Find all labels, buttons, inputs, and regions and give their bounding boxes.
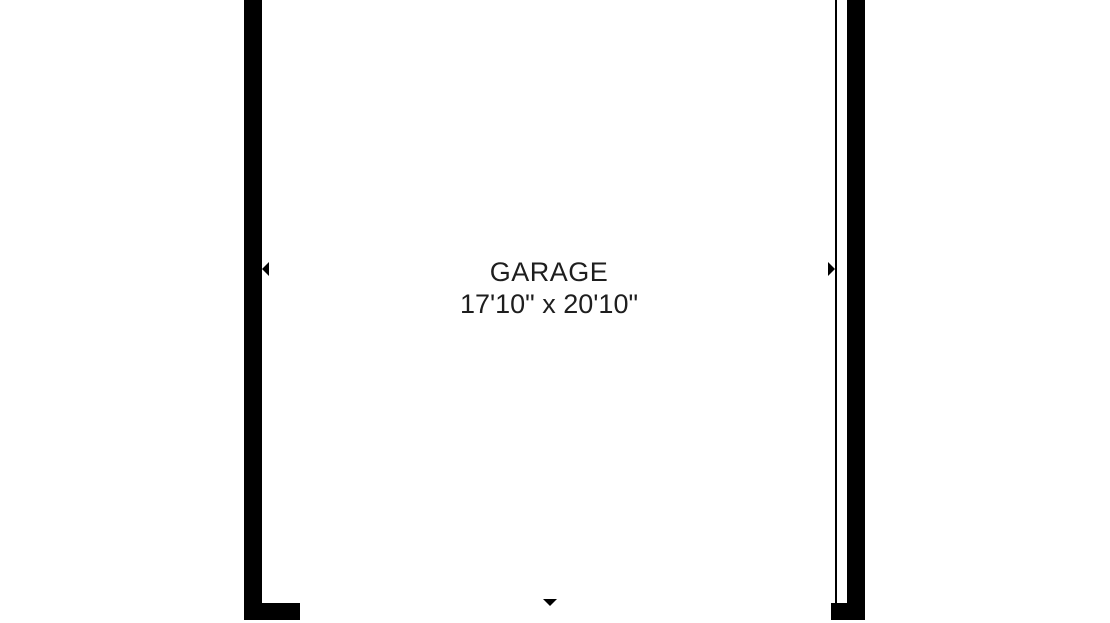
bottom-center-triangle-marker-icon [543, 599, 557, 606]
right-wall [847, 0, 865, 620]
left-wall-bottom-return [244, 603, 300, 620]
right-wall-bottom-return [831, 603, 865, 620]
left-wall [244, 0, 262, 620]
floor-plan-canvas: GARAGE 17'10" x 20'10" [0, 0, 1110, 623]
room-name: GARAGE [262, 256, 836, 288]
room-label: GARAGE 17'10" x 20'10" [262, 256, 836, 321]
room-dimensions: 17'10" x 20'10" [262, 288, 836, 321]
